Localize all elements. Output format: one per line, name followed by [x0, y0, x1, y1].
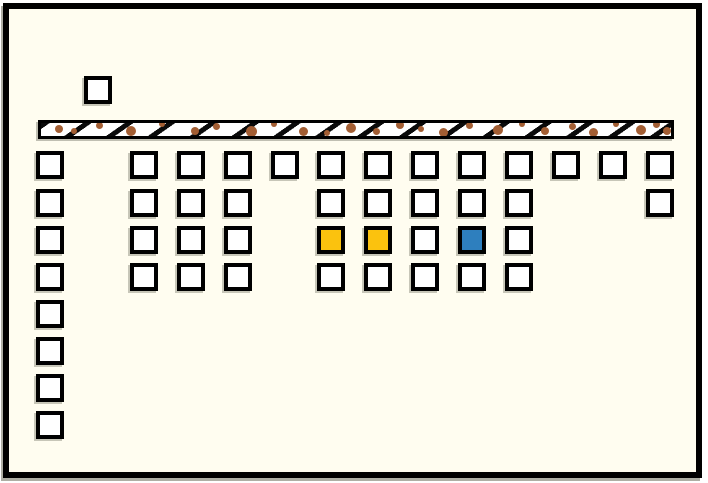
tile[interactable]: [458, 263, 486, 291]
brown-dot: [346, 123, 356, 133]
tile[interactable]: [224, 189, 252, 217]
textured-bar: [38, 120, 674, 139]
tile[interactable]: [505, 151, 533, 179]
brown-dot: [71, 128, 77, 134]
brown-dot: [493, 125, 503, 135]
brown-dot: [663, 127, 671, 135]
tile[interactable]: [411, 226, 439, 254]
brown-dot: [653, 121, 660, 128]
brown-dot: [636, 125, 646, 135]
tile[interactable]: [177, 189, 205, 217]
brown-dot: [324, 130, 330, 136]
tile[interactable]: [271, 151, 299, 179]
tile[interactable]: [130, 189, 158, 217]
brown-dot: [519, 121, 525, 127]
tile[interactable]: [317, 151, 345, 179]
tile[interactable]: [36, 263, 64, 291]
brown-dot: [373, 128, 380, 135]
brown-dot: [466, 122, 473, 129]
tile[interactable]: [224, 263, 252, 291]
tile[interactable]: [177, 226, 205, 254]
tile[interactable]: [458, 151, 486, 179]
tile[interactable]: [364, 151, 392, 179]
tile[interactable]: [224, 151, 252, 179]
brown-dot: [396, 121, 404, 129]
brown-dot: [439, 128, 448, 137]
tile[interactable]: [599, 151, 627, 179]
tile[interactable]: [411, 263, 439, 291]
brown-dot: [541, 127, 549, 135]
tile[interactable]: [505, 263, 533, 291]
tile[interactable]: [646, 151, 674, 179]
brown-dot: [191, 127, 199, 135]
tile[interactable]: [317, 189, 345, 217]
tile[interactable]: [130, 226, 158, 254]
tile[interactable]: [505, 226, 533, 254]
tile[interactable]: [84, 76, 112, 104]
tile[interactable]: [364, 189, 392, 217]
tile[interactable]: [177, 263, 205, 291]
tile[interactable]: [317, 263, 345, 291]
brown-dot: [126, 126, 136, 136]
tile[interactable]: [552, 151, 580, 179]
tile[interactable]: [36, 226, 64, 254]
tile-yellow[interactable]: [364, 226, 392, 254]
brown-dot: [569, 123, 576, 130]
brown-dot: [159, 121, 165, 127]
diagram-frame: [3, 3, 702, 478]
tile-yellow[interactable]: [317, 226, 345, 254]
tile[interactable]: [36, 337, 64, 365]
brown-dot: [55, 125, 63, 133]
scene: [0, 0, 708, 483]
brown-dot: [246, 126, 257, 137]
tile[interactable]: [505, 189, 533, 217]
tile[interactable]: [177, 151, 205, 179]
brown-dot: [418, 126, 424, 132]
tile[interactable]: [646, 189, 674, 217]
tile[interactable]: [36, 374, 64, 402]
tile[interactable]: [36, 300, 64, 328]
brown-dot: [613, 121, 619, 127]
brown-dot: [213, 123, 220, 130]
tile-blue[interactable]: [458, 226, 486, 254]
tile[interactable]: [458, 189, 486, 217]
tile[interactable]: [364, 263, 392, 291]
brown-dot: [271, 121, 277, 127]
tile[interactable]: [130, 263, 158, 291]
tile[interactable]: [411, 151, 439, 179]
tile[interactable]: [130, 151, 158, 179]
tile[interactable]: [36, 151, 64, 179]
brown-dot: [589, 128, 598, 137]
tile[interactable]: [36, 189, 64, 217]
tile[interactable]: [224, 226, 252, 254]
tile[interactable]: [36, 411, 64, 439]
tile[interactable]: [411, 189, 439, 217]
brown-dot: [96, 122, 103, 129]
brown-dot: [299, 127, 308, 136]
